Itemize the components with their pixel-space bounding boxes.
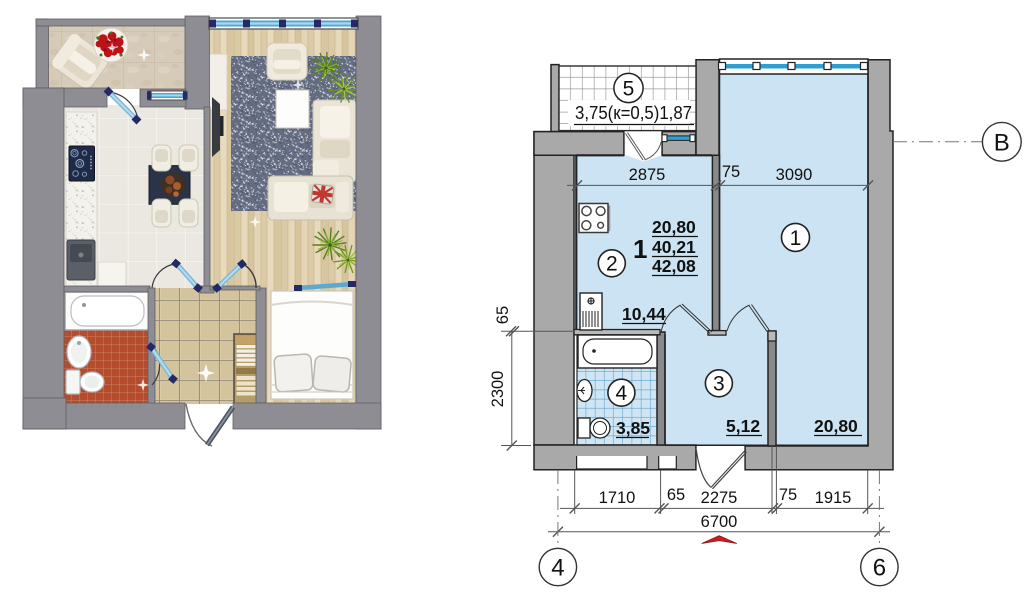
svg-text:40,21: 40,21 [652, 237, 696, 257]
svg-text:42,08: 42,08 [652, 256, 696, 276]
svg-text:1: 1 [633, 234, 647, 264]
svg-text:2: 2 [606, 253, 618, 276]
svg-text:10,44: 10,44 [622, 304, 666, 324]
svg-text:В: В [994, 129, 1010, 156]
svg-text:1: 1 [790, 227, 802, 250]
svg-text:20,80: 20,80 [814, 416, 858, 436]
svg-text:4: 4 [551, 555, 564, 582]
svg-text:2875: 2875 [629, 166, 666, 184]
svg-text:65: 65 [494, 306, 512, 324]
svg-text:3,75(к=0,5)1,87: 3,75(к=0,5)1,87 [575, 102, 692, 123]
svg-text:5: 5 [623, 78, 635, 101]
svg-text:3090: 3090 [776, 166, 813, 184]
svg-text:65: 65 [667, 486, 685, 504]
svg-text:20,80: 20,80 [652, 217, 696, 237]
svg-text:4: 4 [616, 382, 628, 405]
svg-text:1710: 1710 [599, 489, 636, 507]
svg-text:2300: 2300 [489, 371, 507, 408]
svg-text:6700: 6700 [701, 513, 738, 531]
svg-text:3,85: 3,85 [616, 418, 650, 438]
svg-text:75: 75 [779, 486, 797, 504]
svg-text:75: 75 [722, 163, 740, 181]
svg-text:5,12: 5,12 [726, 416, 760, 436]
svg-text:2275: 2275 [701, 489, 738, 507]
svg-text:1915: 1915 [815, 489, 852, 507]
svg-text:6: 6 [873, 555, 886, 582]
svg-text:3: 3 [713, 373, 725, 396]
